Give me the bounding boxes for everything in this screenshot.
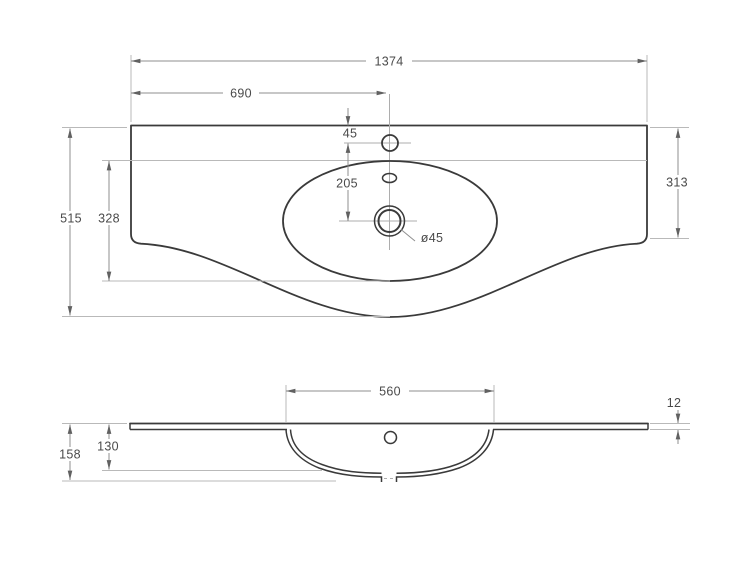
dim-label-bowl-width: 560 [379,385,401,399]
dim-label-faucet-to-drain: 205 [336,177,358,191]
dim-label-side-depth: 313 [666,176,688,190]
technical-drawing-page: 1374 690 45 205 515 [0,0,750,562]
washbasin-technical-drawing: 1374 690 45 205 515 [0,0,750,562]
dim-label-top-thickness: 12 [667,396,682,410]
dim-left-to-faucet: 690 [131,86,386,101]
dim-label-bowl-depth: 130 [97,440,119,454]
top-view: 1374 690 45 205 515 [55,54,694,317]
dim-side-depth: 313 [650,128,694,239]
dim-label-edge-to-faucet: 45 [343,127,358,141]
dim-label-total-height: 158 [59,448,81,462]
dim-bowl-depth: 130 [93,425,322,471]
dim-label-drain-diameter: ø45 [421,231,443,245]
dim-label-overall-width: 1374 [374,55,403,69]
overflow-hole-front [385,432,397,444]
dim-label-total-depth: 515 [60,212,82,226]
bowl-outer-profile [286,430,494,483]
dim-top-thickness: 12 [650,396,690,444]
bowl-inner-profile [291,430,490,474]
leader-line [401,230,415,242]
dim-label-basin-depth: 328 [98,212,120,226]
dim-bowl-width: 560 [286,384,494,422]
front-view: 560 12 158 130 [55,384,690,482]
dim-label-left-to-faucet: 690 [230,87,252,101]
dim-drain-diameter: ø45 [401,230,443,246]
dim-faucet-to-drain: 205 [329,176,366,221]
